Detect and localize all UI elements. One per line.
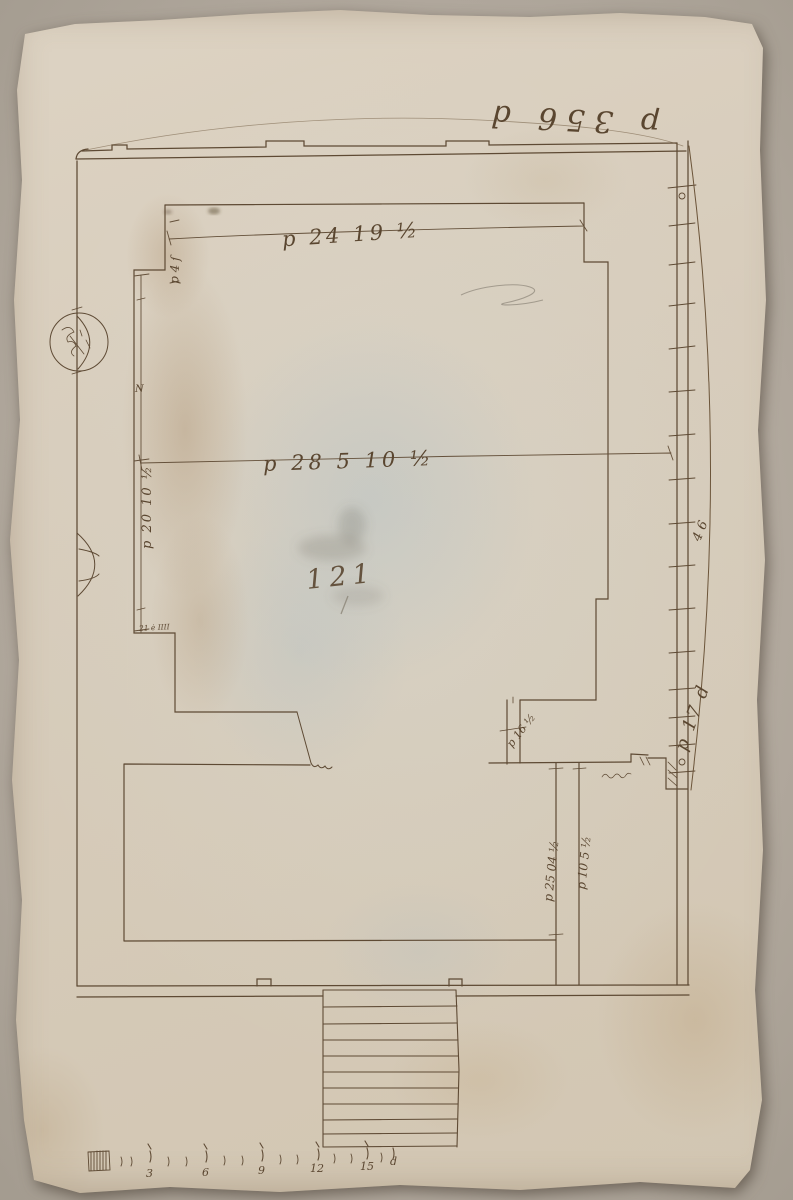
paper-sheet-shadow: p 356 d p 24 19 ½ p 28 5 10 ½ p 20 10 ½ …	[0, 0, 793, 1200]
inscription-left-height: p 20 10 ½	[140, 465, 155, 549]
upper-roundel-scribble	[62, 307, 90, 374]
scale-label-12: 12	[310, 1162, 324, 1175]
diagonal-wall-scallop	[297, 712, 332, 769]
ink-spot	[208, 208, 220, 215]
staircase	[323, 990, 459, 1147]
scale-end-label: d	[390, 1155, 397, 1168]
paper-sheet: p 356 d p 24 19 ½ p 28 5 10 ½ p 20 10 ½ …	[0, 0, 793, 1200]
ink-inscriptions: p 356 d p 24 19 ½ p 28 5 10 ½ p 20 10 ½ …	[134, 97, 714, 902]
inner-hall	[124, 203, 688, 985]
right-wall-dimension-ticks	[668, 185, 696, 773]
staircase-steps	[323, 990, 458, 1147]
channel-inscription-scribble	[602, 773, 631, 778]
scale-label-6: 6	[202, 1166, 209, 1179]
lower-left-room	[124, 764, 556, 941]
inscription-upper-left: p 4 ſ	[167, 254, 183, 285]
staircase-sides	[323, 990, 459, 1147]
inscription-hall-width: p 28 5 10 ½	[263, 446, 435, 476]
bottom-wall	[77, 979, 689, 997]
hall-top-wall	[165, 203, 584, 205]
lower-cross-wall	[489, 762, 631, 763]
scale-hatched-block	[88, 1151, 110, 1171]
lower-semicircle	[77, 533, 99, 596]
photograph-of-drawing: p 356 d p 24 19 ½ p 28 5 10 ½ p 20 10 ½ …	[0, 0, 793, 1200]
floor-plan-drawing: p 356 d p 24 19 ½ p 28 5 10 ½ p 20 10 ½ …	[0, 0, 793, 1200]
scale-major-ticks	[148, 1141, 394, 1162]
inscription-top-right: p 356 d	[481, 97, 660, 141]
upper-roundel	[50, 313, 108, 371]
hall-right-wall-stepped	[520, 203, 608, 700]
scale-label-3: 3	[146, 1167, 153, 1180]
upper-roundel-arc	[77, 316, 90, 369]
ink-spots	[164, 208, 220, 215]
right-wall-knot-lower	[679, 759, 685, 765]
right-wall-double-line	[677, 141, 688, 985]
inscription-inner-corner: 21 ė IIII	[138, 622, 171, 633]
inscription-passage: p 16 ½	[504, 711, 538, 750]
wall-roundels	[50, 307, 108, 596]
dimension-lines	[134, 220, 673, 632]
channel-hatching	[640, 757, 677, 786]
scale-labels: 3 6 9 12 15 d	[146, 1155, 397, 1180]
scale-minor-ticks	[121, 1153, 382, 1166]
top-wall-outer-line	[82, 141, 677, 151]
left-height-dimension-line	[134, 274, 149, 632]
inscription-upper-width: p 24 19 ½	[281, 218, 421, 252]
outer-walls	[76, 118, 711, 997]
scale-label-9: 9	[258, 1164, 265, 1177]
smudge	[338, 507, 366, 543]
inscription-lower-dim-b: p 10 5 ½	[574, 835, 594, 890]
top-wall-inner-line	[76, 151, 686, 159]
right-wall-knot-upper	[679, 193, 685, 199]
pencil-s-flourish	[461, 285, 543, 305]
inscription-left-mark: N	[134, 384, 145, 395]
channel-notch	[631, 754, 688, 789]
scale-label-15: 15	[360, 1160, 374, 1173]
inscription-lower-dim-a: p 25 04 ½	[541, 840, 561, 902]
